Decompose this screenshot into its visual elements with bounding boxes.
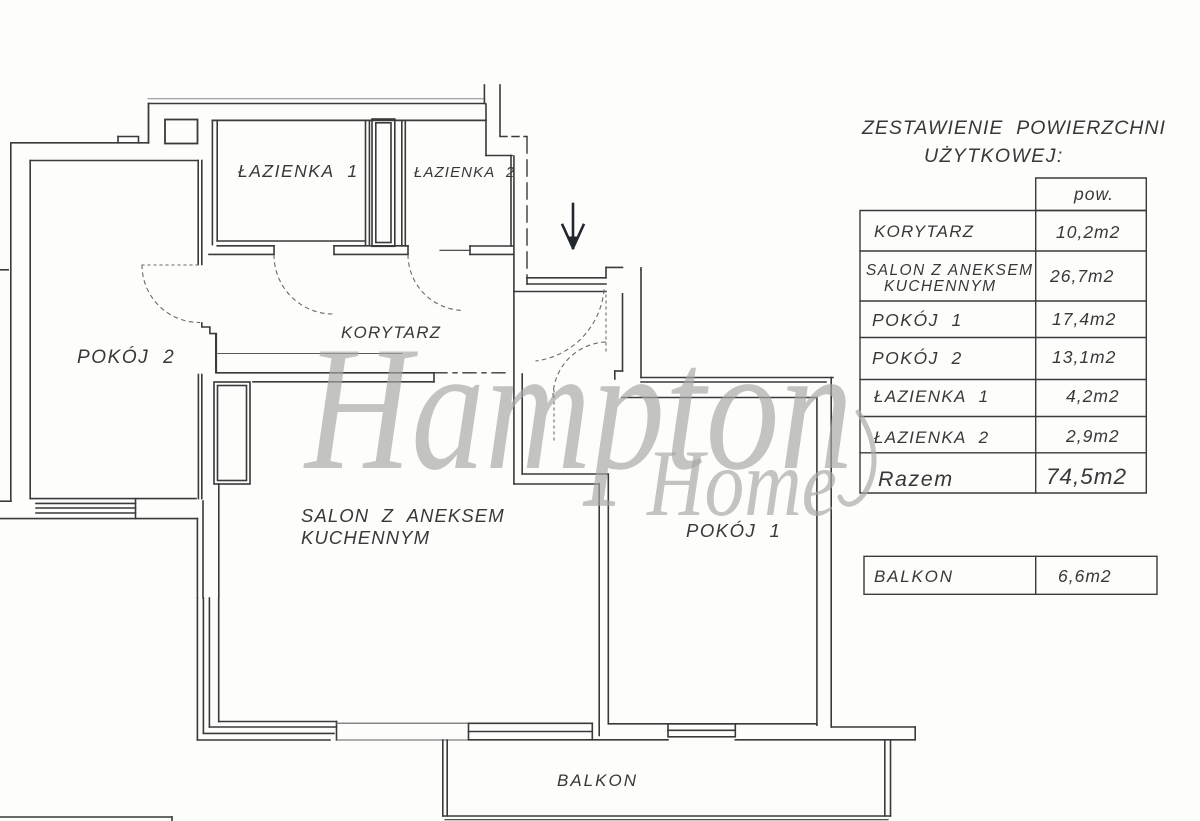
- svg-text:KUCHENNYM: KUCHENNYM: [884, 278, 997, 295]
- svg-text:BALKON: BALKON: [874, 567, 954, 586]
- svg-text:6,6m2: 6,6m2: [1058, 566, 1112, 586]
- svg-text:KORYTARZ: KORYTARZ: [874, 222, 974, 241]
- svg-text:26,7m2: 26,7m2: [1049, 266, 1114, 286]
- svg-text:POKÓJ 2: POKÓJ 2: [77, 346, 175, 368]
- svg-text:Razem: Razem: [878, 467, 954, 491]
- svg-text:ŁAZIENKA 1: ŁAZIENKA 1: [874, 387, 989, 406]
- svg-text:ŁAZIENKA 2: ŁAZIENKA 2: [414, 164, 515, 181]
- svg-text:KUCHENNYM: KUCHENNYM: [301, 527, 430, 548]
- svg-text:ŁAZIENKA 2: ŁAZIENKA 2: [874, 428, 989, 447]
- svg-text:ZESTAWIENIE POWIERZCHNI: ZESTAWIENIE POWIERZCHNI: [861, 117, 1166, 139]
- svg-text:ŁAZIENKA 1: ŁAZIENKA 1: [238, 161, 359, 181]
- svg-text:SALON Z ANEKSEM: SALON Z ANEKSEM: [866, 262, 1033, 279]
- svg-text:POKÓJ 2: POKÓJ 2: [872, 347, 963, 368]
- svg-text:POKÓJ 1: POKÓJ 1: [872, 309, 963, 330]
- svg-text:4,2m2: 4,2m2: [1066, 386, 1120, 406]
- svg-text:13,1m2: 13,1m2: [1052, 347, 1116, 367]
- svg-text:BALKON: BALKON: [557, 771, 638, 790]
- svg-text:pow.: pow.: [1073, 184, 1114, 204]
- svg-text:SALON Z ANEKSEM: SALON Z ANEKSEM: [301, 505, 505, 526]
- svg-text:2,9m2: 2,9m2: [1065, 426, 1120, 446]
- svg-text:UŻYTKOWEJ:: UŻYTKOWEJ:: [924, 145, 1064, 167]
- svg-text:17,4m2: 17,4m2: [1052, 309, 1116, 329]
- svg-text:Home: Home: [645, 430, 837, 536]
- svg-text:10,2m2: 10,2m2: [1056, 222, 1120, 242]
- svg-text:74,5m2: 74,5m2: [1046, 464, 1127, 489]
